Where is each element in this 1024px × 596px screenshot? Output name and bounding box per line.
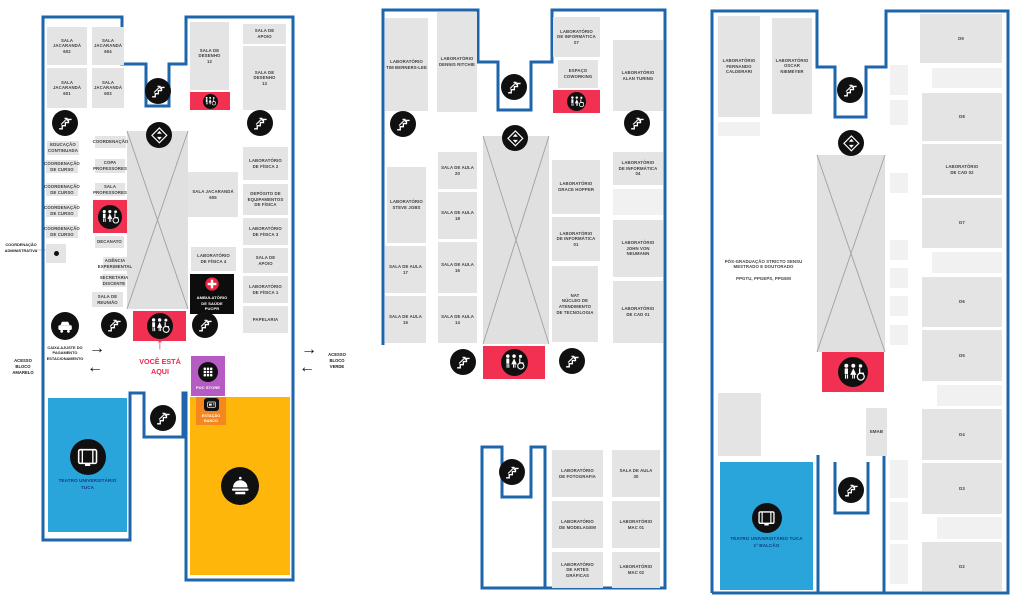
- room: LABORATÓRIO DE FÍSICA 4: [191, 247, 236, 271]
- room: ESPAÇO COWORKING: [558, 60, 598, 88]
- elevator-icon: [838, 130, 864, 156]
- room: SALA DE DESENHO 12: [190, 22, 229, 90]
- stairs-icon: [624, 110, 650, 136]
- room: LABORATÓRIO DE MODELAGEM: [552, 501, 603, 548]
- room: LABORATÓRIO DE CAD 02: [922, 144, 1002, 195]
- room: COORDENAÇÃO: [95, 136, 126, 148]
- room: DECANATO: [95, 236, 124, 248]
- room: COORDENAÇÃO DE CURSO: [46, 160, 78, 173]
- room: SALA DE AULA 20: [438, 152, 477, 189]
- stairs-icon: [837, 77, 863, 103]
- room: LABORATÓRIO DE ARTES GRÁFICAS: [552, 552, 603, 588]
- wc-icon: [501, 349, 528, 376]
- room: LABORATÓRIO DE INFORMÁTICA 01: [552, 217, 600, 261]
- room: LABORATÓRIO DE INFORMÁTICA 07: [553, 17, 600, 57]
- room: D8: [922, 93, 1002, 141]
- room: [718, 393, 761, 456]
- wc-icon: [567, 92, 586, 111]
- room: COPA PROFESSORES: [95, 159, 125, 173]
- elevator-icon: [146, 122, 172, 148]
- room: SALA PROFESSORES: [95, 183, 125, 196]
- restroom: [822, 352, 884, 392]
- room: LABORATÓRIO DE FÍSICA 3: [243, 218, 288, 245]
- room: [890, 325, 908, 345]
- room: SALA JACARANDÁ 603: [92, 68, 124, 108]
- room: LABORATÓRIO DE FOTOGRAFIA: [552, 450, 603, 497]
- admin-coordination-label: COORDENAÇÃO ADMINISTRATIVA: [1, 241, 41, 254]
- stairs-icon: [247, 110, 273, 136]
- stairs-icon: [192, 312, 218, 338]
- stairs-icon: [499, 459, 525, 485]
- room: [937, 385, 1002, 406]
- stairs-icon: [150, 405, 176, 431]
- room: LABORATÓRIO JOHN VON NEUMANN: [613, 220, 663, 277]
- room: [890, 100, 908, 125]
- room: LABORATÓRIO DE FÍSICA 2: [243, 147, 288, 180]
- room: SALA JACARANDÁ 601: [47, 68, 87, 108]
- restroom: [553, 90, 600, 113]
- room: [937, 517, 1002, 539]
- room: COORDENAÇÃO DE CURSO: [46, 183, 78, 196]
- room: LABORATÓRIO MAC 01: [612, 501, 660, 548]
- theater-icon: [70, 439, 106, 475]
- room: LABORATÓRIO STEVE JOBS: [387, 167, 426, 243]
- room: LABORATÓRIO DENNIS RITCHIE: [437, 12, 477, 112]
- food-icon: [221, 467, 259, 505]
- wc-icon: [838, 357, 868, 387]
- atm-icon: [204, 398, 219, 411]
- room: SALA DE AULA 18: [438, 192, 477, 239]
- stairs-icon: [52, 110, 78, 136]
- room: [613, 189, 663, 215]
- room: LABORATÓRIO DE INFORMÁTICA 04: [613, 152, 663, 185]
- room: SALA DE AULA 16: [438, 242, 477, 293]
- room: [718, 122, 760, 136]
- room: NAT NÚCLEO DE ATENDIMENTO DE TECNOLOGIA: [552, 266, 598, 342]
- room: [890, 268, 908, 288]
- room: COORDENAÇÃO DE CURSO: [46, 204, 78, 217]
- atm-station: ESTAÇÃO BANCO: [196, 397, 226, 425]
- room: SALA DE APOIO: [243, 24, 286, 44]
- stairs-icon: [101, 312, 127, 338]
- room: DEPÓSITO DE EQUIPAMENTOS DE FÍSICA: [243, 184, 288, 215]
- wc-icon: [203, 94, 218, 109]
- store-icon: [198, 362, 218, 382]
- room: SECRETARIA DISCENTE: [102, 274, 126, 287]
- room: [932, 252, 1002, 273]
- room: D2: [922, 542, 1002, 591]
- you-are-here-arrow: ↑: [150, 336, 170, 354]
- room: LABORATÓRIO GRACE HOPPER: [552, 160, 600, 214]
- room: LABORATÓRIO OSCAR NIEMEYER: [772, 18, 812, 114]
- elevator-icon: [502, 125, 528, 151]
- restroom: [190, 92, 230, 110]
- room: COORDENAÇÃO DE CURSO: [46, 225, 78, 238]
- stairs-icon: [390, 111, 416, 137]
- theater-room: TEATRO UNIVERSITÁRIO TUCA: [48, 398, 127, 532]
- room: SALA DE AULA 15: [385, 296, 426, 343]
- room: AGÊNCIA EXPERIMENTAL: [103, 257, 127, 271]
- stairs-icon: [501, 74, 527, 100]
- room: D9: [920, 14, 1002, 63]
- room: LABORATÓRIO MAC 02: [612, 552, 660, 588]
- puc-store: PUC STORE: [191, 356, 225, 396]
- room: LABORATÓRIO FERNANDO CALDERARI: [718, 16, 760, 117]
- theater-label: TEATRO UNIVERSITÁRIO TUCA 1º BALCÃO: [730, 536, 802, 548]
- stairs-icon: [145, 78, 171, 104]
- parking-kiosk-label: CAIXA AJUSTE DO PAGAMENTO ESTACIONAMENTO: [38, 343, 92, 363]
- theater-label: TEATRO UNIVERSITÁRIO TUCA: [59, 478, 117, 490]
- room: D5: [922, 330, 1002, 381]
- room: D3: [922, 463, 1002, 514]
- admin-office: [46, 244, 66, 263]
- room: LABORATÓRIO TIM BERNERS-LEE: [385, 18, 428, 111]
- you-are-here-label: VOCÊ ESTÁ AQUI: [128, 357, 192, 377]
- room: PÓS-GRADUAÇÃO STRICTO SENSU MESTRADO E D…: [715, 155, 812, 385]
- room: LABORATÓRIO DE CAD 01: [613, 281, 663, 343]
- room: [890, 296, 908, 316]
- restroom: [483, 346, 545, 379]
- room: SALA JACARANDÁ 602: [47, 27, 87, 65]
- first-aid-icon: [204, 276, 220, 292]
- room: SALA DE AULA 30: [612, 450, 660, 497]
- stairs-icon: [559, 348, 585, 374]
- room: SALA DE AULA 17: [385, 246, 426, 293]
- restroom: [93, 200, 127, 233]
- room: EMAB: [866, 408, 887, 456]
- room: EDUCAÇÃO CONTINUADA: [47, 141, 79, 155]
- location-dot: [54, 251, 59, 256]
- room: SALA DE AULA 14: [438, 296, 477, 343]
- room: SALA DE APOIO: [243, 248, 288, 273]
- room: [890, 240, 908, 260]
- room: LABORATÓRIO ALAN TURING: [613, 40, 663, 111]
- store-label: PUC STORE: [196, 385, 220, 390]
- room: LABORATÓRIO DE FÍSICA 1: [243, 276, 288, 303]
- access-label-east: ACESSO BLOCO VERDE: [318, 348, 356, 374]
- campus-floor-plans: SALA JACARANDÁ 602SALA JACARANDÁ 604SALA…: [0, 0, 1024, 596]
- wc-icon: [98, 205, 122, 229]
- room: SALA DE REUNIÃO: [92, 292, 123, 307]
- theater-icon: [752, 503, 782, 533]
- theater-room: TEATRO UNIVERSITÁRIO TUCA 1º BALCÃO: [720, 462, 813, 590]
- clinic-label: AMBULATÓRIO DE SAÚDE PUCPR: [197, 295, 228, 311]
- room: [890, 544, 908, 584]
- stairs-icon: [838, 477, 864, 503]
- room: D4: [922, 409, 1002, 460]
- room: PAPELARIA: [243, 306, 288, 333]
- room: [932, 68, 1002, 88]
- atm-label: ESTAÇÃO BANCO: [202, 414, 220, 424]
- car-icon: [51, 312, 79, 340]
- room: D6: [922, 277, 1002, 327]
- room: [890, 460, 908, 498]
- room: SALA JACARANDÁ 604: [92, 27, 124, 65]
- room: [890, 173, 908, 193]
- room: SALA JACARANDÁ 605: [188, 172, 238, 217]
- room: D7: [922, 198, 1002, 248]
- room: SALA DE DESENHO 13: [243, 46, 286, 110]
- stairs-icon: [450, 349, 476, 375]
- health-clinic: AMBULATÓRIO DE SAÚDE PUCPR: [190, 274, 234, 314]
- room: [890, 502, 908, 540]
- room: [890, 65, 908, 95]
